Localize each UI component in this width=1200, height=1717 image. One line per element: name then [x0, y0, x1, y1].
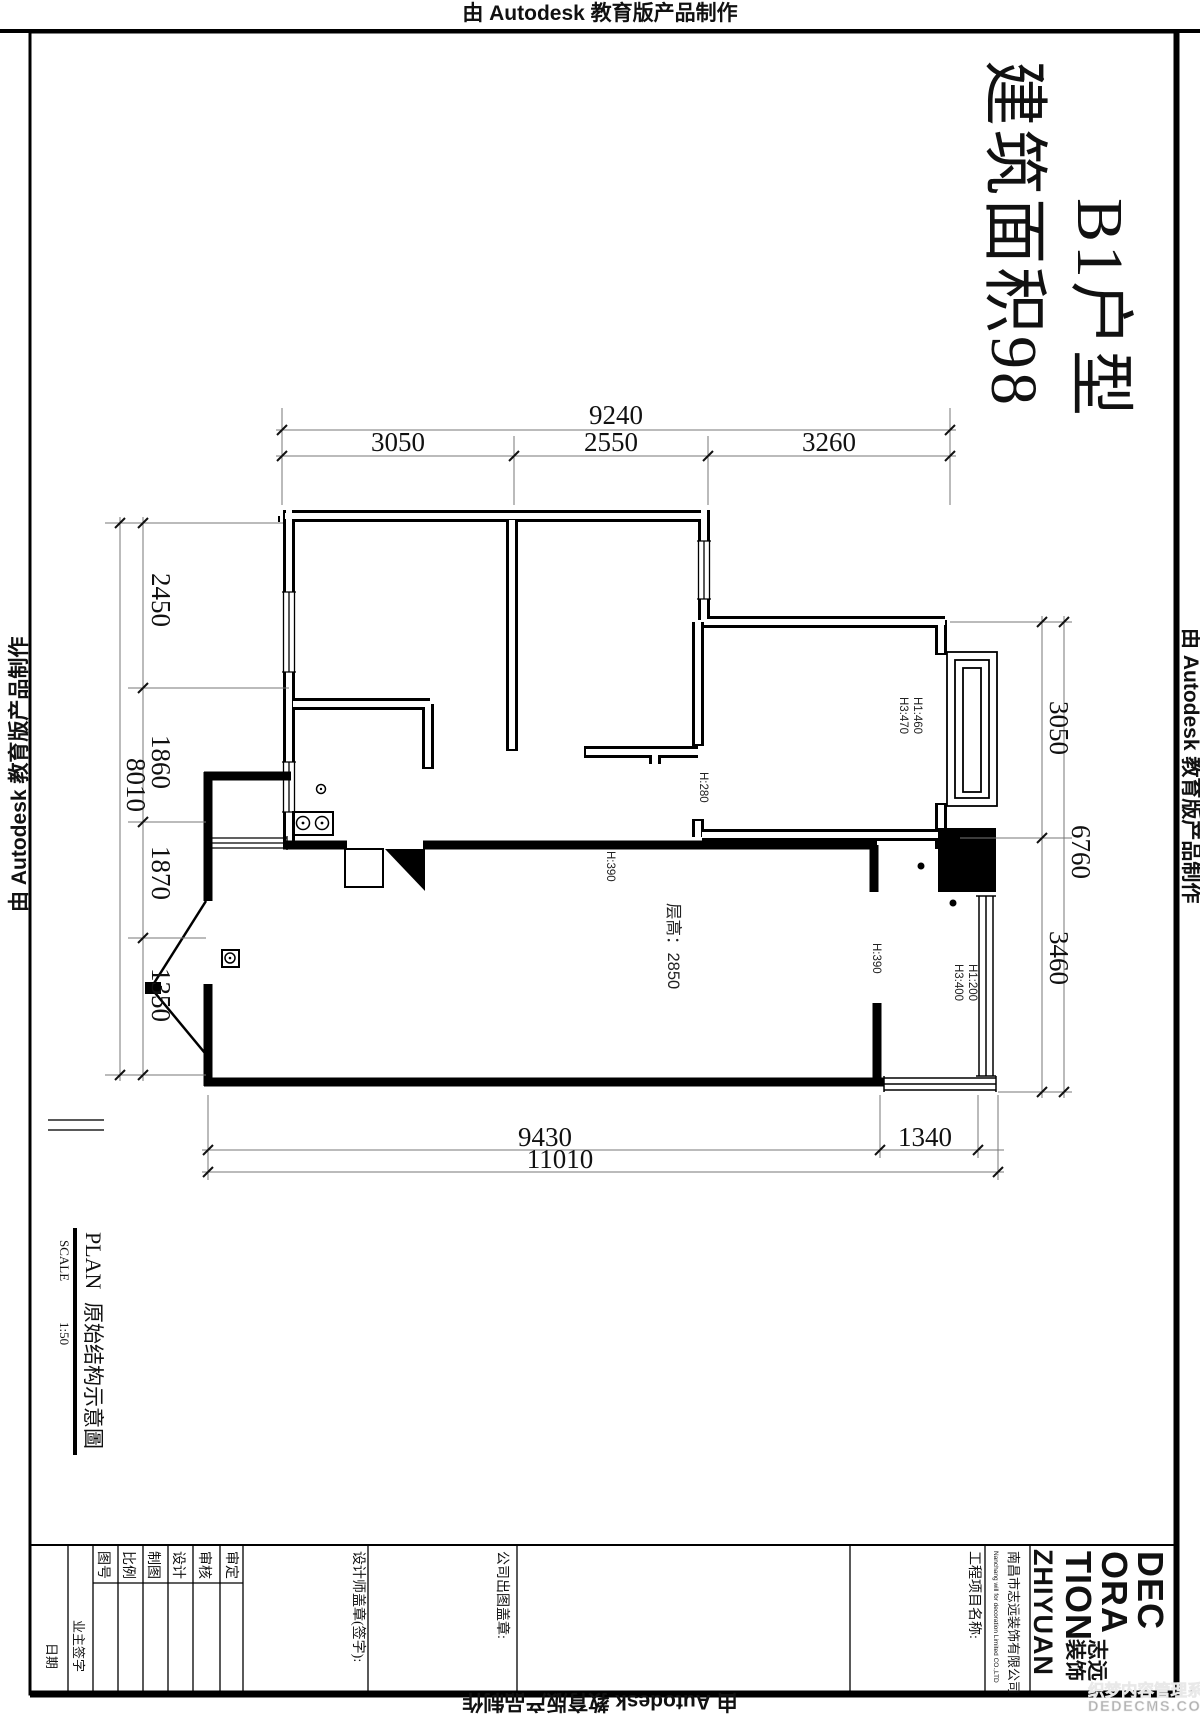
plan-scale-label: SCALE	[57, 1240, 72, 1281]
window-left-lower	[282, 762, 296, 812]
dim-top-2: 2550	[584, 427, 638, 457]
tb-date: 日期	[44, 1643, 59, 1669]
wall-end-caps	[279, 516, 947, 820]
plan-dot-1	[918, 863, 925, 870]
logo-line-2: ORA	[1094, 1551, 1135, 1634]
label-h1-460: H1:460	[911, 697, 923, 734]
banner-left: 由 Autodesk 教育版产品制作	[7, 637, 31, 912]
plan-dot-2	[950, 900, 957, 907]
dim-top-overall: 9240	[589, 400, 643, 430]
label-h390-kitchen: H:390	[604, 851, 616, 882]
banner-bottom: 由 Autodesk 教育版产品制作	[462, 1690, 737, 1714]
logo-line-3: TION	[1058, 1551, 1099, 1641]
label-ceiling-height: 层高：2850	[664, 903, 683, 989]
title-block: 审定 审核 设计 制图 比例 图号 业主签字 日期 设计师盖章(签字): 公司出…	[30, 1545, 1178, 1694]
dimension-ticks	[115, 425, 1069, 1177]
title-unit-type: B1户型	[1063, 198, 1136, 419]
watermark-line-2: DEDECMS.COM	[1088, 1699, 1200, 1715]
dim-right-2: 3460	[1044, 931, 1074, 985]
dim-left-3: 1870	[146, 846, 176, 900]
dim-bottom-2: 1340	[898, 1122, 952, 1152]
tb-review: 审核	[196, 1551, 212, 1579]
plan-caption-block: PLAN 原始结构示意圖 SCALE 1:50	[48, 1120, 106, 1455]
logo-zh-1: 志远	[1085, 1639, 1109, 1681]
walls-hollow-outer	[285, 510, 945, 849]
label-h3-470: H3:470	[897, 697, 909, 734]
kitchen-door	[345, 849, 425, 891]
window-balcony-bottom	[884, 1076, 996, 1092]
dim-top-3: 3260	[802, 427, 856, 457]
dim-left-1: 2450	[146, 573, 176, 627]
logo-line-4: ZHIYUAN	[1028, 1549, 1058, 1676]
bay-window	[947, 652, 997, 806]
dim-right-overall: 6760	[1066, 825, 1096, 879]
watermark: 织梦内容管理系统 DEDECMS.COM	[1088, 1680, 1200, 1715]
window-step	[697, 541, 711, 599]
title-area: 建筑面积98	[977, 60, 1050, 408]
tb-draft: 制图	[145, 1551, 161, 1579]
dim-bottom-overall: 11010	[527, 1144, 594, 1174]
tb-project-name: 工程项目名称:	[966, 1551, 982, 1639]
label-h390-balcony: H:390	[870, 943, 882, 974]
dim-left-2: 1860	[146, 735, 176, 789]
title-block-dividers	[68, 1545, 1030, 1692]
sheet-big-title: B1户型 建筑面积98	[977, 60, 1136, 419]
tb-design: 设计	[170, 1551, 186, 1579]
tb-owner-sign: 业主签字	[71, 1620, 86, 1672]
logo-zh-2: 装饰	[1063, 1639, 1087, 1681]
watermark-line-1: 织梦内容管理系统	[1088, 1680, 1200, 1700]
tb-company-zh: 南昌市志远装饰有限公司	[1006, 1551, 1021, 1694]
label-h1-200: H1:200	[966, 964, 978, 1001]
stove-symbol	[293, 785, 333, 836]
plan-scale-value: 1:50	[57, 1322, 72, 1345]
tb-drawing-no: 图号	[95, 1551, 110, 1579]
tb-designer-stamp: 设计师盖章(签字):	[350, 1551, 367, 1662]
drawing-sheet: 9240 3050 2550 3260 8010 2450 1860 1870 …	[0, 0, 1200, 1717]
tb-company-en: Nanchang will for decoration Limited CO.…	[992, 1551, 999, 1683]
tb-company-stamp: 公司出图盖章:	[494, 1551, 511, 1639]
window-balcony-right	[976, 896, 996, 1076]
plan-caption-en: PLAN	[81, 1232, 106, 1290]
dimension-lines	[105, 408, 1072, 1180]
walls-solid	[204, 772, 884, 1086]
banner-right: 由 Autodesk 教育版产品制作	[1179, 628, 1200, 903]
dim-right-1: 3050	[1044, 701, 1074, 755]
walls-hollow-inner	[285, 510, 945, 849]
label-h280: H:280	[697, 772, 709, 803]
window-left-upper	[282, 592, 296, 672]
banner-top: 由 Autodesk 教育版产品制作	[462, 1, 737, 25]
floor-plan	[145, 510, 997, 1092]
company-logo: DEC ORA TION ZHIYUAN 志远 装饰	[1028, 1549, 1171, 1681]
window-entry-hatch	[206, 836, 287, 850]
dim-left-4: 1350	[146, 968, 176, 1022]
tb-approve: 审定	[223, 1551, 239, 1579]
dim-top-1: 3050	[371, 427, 425, 457]
floorplan-sheet-svg: 9240 3050 2550 3260 8010 2450 1860 1870 …	[0, 0, 1200, 1717]
plan-caption-zh: 原始结构示意圖	[81, 1302, 105, 1449]
door-stop-symbol	[222, 950, 239, 967]
label-h3-400: H3:400	[952, 964, 964, 1001]
tb-scale: 比例	[120, 1551, 136, 1579]
logo-line-1: DEC	[1130, 1551, 1171, 1630]
